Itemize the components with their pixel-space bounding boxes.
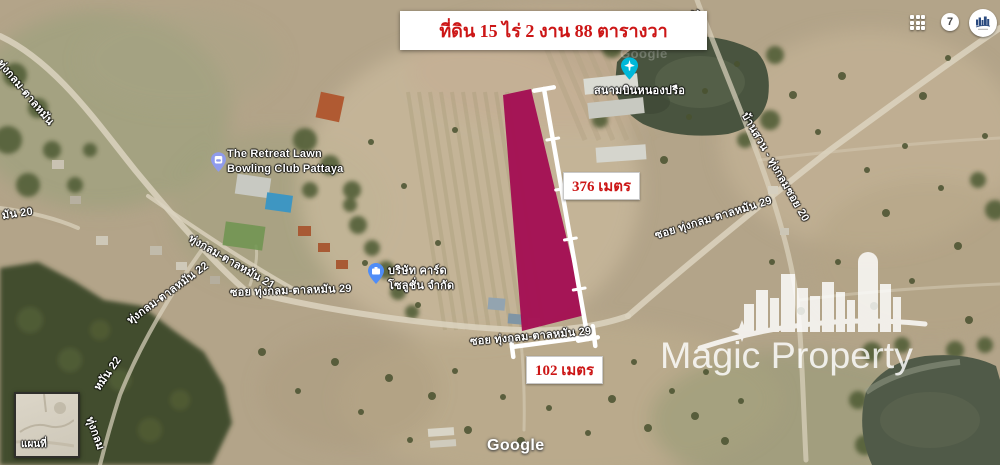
brand-avatar[interactable] bbox=[969, 9, 997, 37]
listing-title-banner: ที่ดิน 15 ไร่ 2 งาน 88 ตารางวา bbox=[400, 11, 707, 50]
listing-title: ที่ดิน 15 ไร่ 2 งาน 88 ตารางวา bbox=[439, 16, 667, 45]
land-plot-polygon bbox=[503, 89, 585, 331]
notification-count-badge[interactable]: 7 bbox=[941, 13, 959, 31]
inset-map-label: แผนที่ bbox=[21, 437, 47, 452]
airport-pin-icon[interactable] bbox=[621, 57, 638, 81]
measure-label-102: 102 เมตร bbox=[526, 356, 603, 384]
google-logo[interactable]: Google bbox=[487, 437, 545, 455]
lodging-pin-icon[interactable] bbox=[211, 152, 226, 173]
inset-map[interactable]: แผนที่ bbox=[14, 392, 80, 458]
place-label-airport[interactable]: สนามบินหนองปรือ bbox=[594, 84, 685, 99]
business-pin-icon[interactable] bbox=[368, 263, 384, 285]
brand-avatar-skyline-icon bbox=[973, 13, 993, 33]
plot-overlay bbox=[0, 0, 1000, 465]
apps-grid-icon[interactable] bbox=[910, 15, 925, 30]
property-map-screenshot: Google ทุ่งกลม-ตาลหมัน มัน 20 ทุ่งกลม-ตา… bbox=[0, 0, 1000, 465]
place-label-company[interactable]: บริษัท คาร์ด โซลูชั่น จำกัด bbox=[388, 264, 454, 294]
place-label-retreat[interactable]: The Retreat Lawn Bowling Club Pattaya bbox=[227, 147, 343, 177]
measure-label-376: 376 เมตร bbox=[563, 172, 640, 200]
